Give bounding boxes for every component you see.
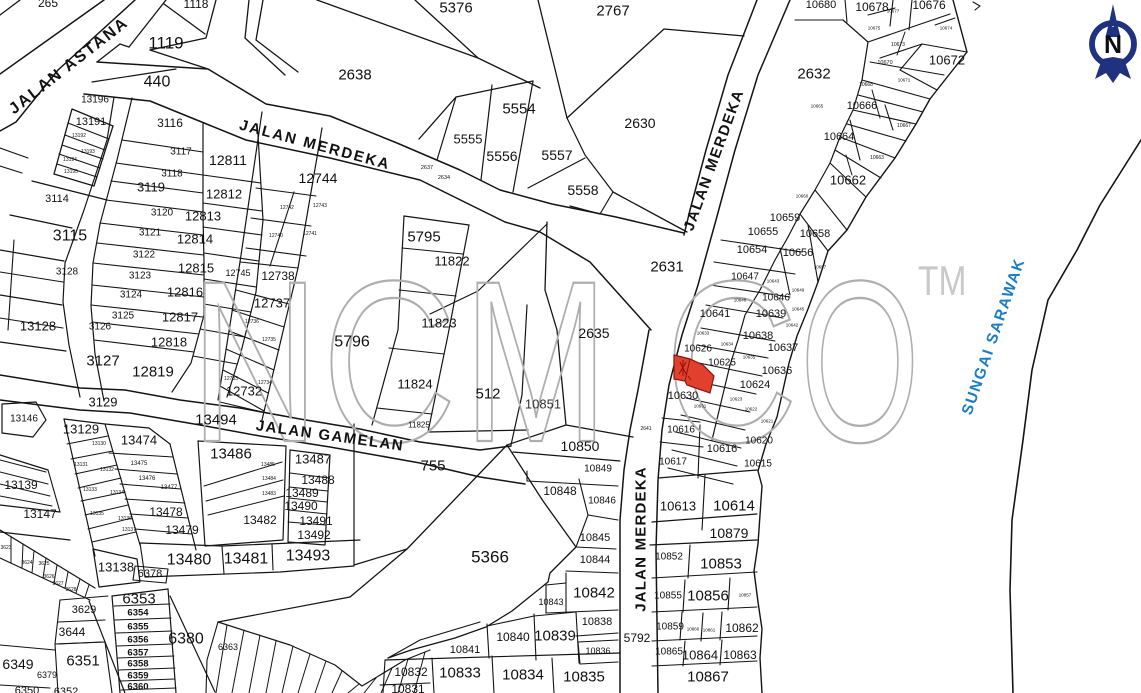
svg-text:5554: 5554: [502, 101, 535, 118]
svg-text:5556: 5556: [486, 148, 517, 164]
svg-text:10645: 10645: [792, 307, 805, 312]
svg-text:10670: 10670: [877, 60, 892, 66]
svg-text:10834: 10834: [502, 667, 544, 684]
svg-text:3124: 3124: [120, 290, 143, 301]
svg-text:3128: 3128: [56, 267, 79, 278]
svg-text:6353: 6353: [122, 591, 155, 608]
svg-text:13489: 13489: [285, 486, 319, 500]
svg-text:10865: 10865: [655, 647, 683, 658]
svg-text:12812: 12812: [206, 187, 242, 202]
svg-text:10649: 10649: [792, 288, 805, 293]
svg-text:13490: 13490: [284, 499, 318, 513]
svg-text:6357: 6357: [127, 648, 148, 659]
svg-text:3116: 3116: [157, 116, 183, 130]
svg-text:6355: 6355: [127, 622, 149, 633]
svg-text:3126: 3126: [89, 322, 112, 333]
svg-text:3125: 3125: [112, 311, 135, 322]
svg-text:13481: 13481: [224, 551, 269, 568]
svg-text:13477: 13477: [161, 485, 178, 491]
svg-text:12735: 12735: [262, 337, 276, 343]
svg-text:5376: 5376: [439, 0, 472, 17]
svg-text:10860: 10860: [687, 627, 700, 632]
svg-text:12736: 12736: [245, 319, 259, 325]
svg-text:2630: 2630: [624, 115, 655, 131]
svg-text:10662: 10662: [830, 173, 866, 188]
svg-text:10636: 10636: [762, 365, 793, 377]
svg-text:10639: 10639: [756, 308, 787, 320]
svg-text:13136: 13136: [118, 516, 132, 522]
svg-text:10616: 10616: [707, 443, 738, 455]
svg-text:13485: 13485: [261, 462, 275, 468]
svg-text:6378: 6378: [138, 568, 162, 580]
svg-text:12814: 12814: [177, 232, 213, 247]
svg-text:10637: 10637: [768, 342, 799, 354]
svg-text:13488: 13488: [301, 473, 335, 487]
svg-text:6354: 6354: [127, 608, 149, 619]
svg-text:10625: 10625: [708, 358, 736, 369]
svg-text:5366: 5366: [471, 548, 509, 567]
svg-text:13129: 13129: [63, 422, 99, 437]
svg-text:13487: 13487: [295, 452, 331, 467]
svg-text:2638: 2638: [338, 67, 371, 84]
svg-text:13494: 13494: [195, 412, 237, 429]
svg-text:13192: 13192: [72, 133, 86, 139]
svg-text:10838: 10838: [582, 616, 613, 628]
svg-text:3624: 3624: [21, 560, 32, 566]
svg-text:3119: 3119: [137, 180, 165, 195]
svg-text:13492: 13492: [297, 528, 331, 542]
svg-text:13476: 13476: [139, 476, 156, 482]
svg-text:10836: 10836: [585, 646, 610, 656]
svg-text:13479: 13479: [165, 523, 199, 537]
svg-text:5555: 5555: [454, 132, 483, 147]
svg-text:13193: 13193: [81, 149, 95, 155]
svg-text:3118: 3118: [161, 169, 183, 180]
svg-text:6350: 6350: [15, 685, 39, 693]
svg-text:2637: 2637: [421, 165, 433, 171]
svg-text:10833: 10833: [439, 665, 481, 682]
svg-text:13138: 13138: [98, 560, 134, 575]
svg-text:10672: 10672: [929, 53, 965, 68]
svg-text:6358: 6358: [127, 659, 148, 670]
svg-text:10677: 10677: [887, 9, 900, 14]
svg-text:10675: 10675: [868, 26, 881, 31]
svg-text:13135: 13135: [90, 511, 104, 517]
svg-text:10666: 10666: [847, 100, 878, 112]
svg-text:13482: 13482: [243, 513, 277, 527]
svg-text:10835: 10835: [563, 669, 605, 686]
svg-text:10626: 10626: [684, 344, 712, 355]
svg-text:2634: 2634: [438, 175, 450, 181]
svg-text:10620: 10620: [745, 436, 773, 447]
svg-text:13131: 13131: [74, 462, 88, 468]
svg-text:10845: 10845: [580, 532, 611, 544]
svg-text:10624: 10624: [740, 379, 771, 391]
svg-text:10849: 10849: [584, 464, 612, 475]
svg-text:10643: 10643: [767, 279, 780, 284]
svg-text:12742: 12742: [280, 205, 294, 211]
svg-text:13478: 13478: [149, 505, 183, 519]
svg-text:10678: 10678: [855, 0, 889, 14]
svg-text:12732: 12732: [226, 384, 262, 399]
svg-text:10654: 10654: [737, 244, 768, 256]
svg-text:10879: 10879: [710, 525, 749, 541]
svg-text:13474: 13474: [121, 433, 157, 448]
svg-text:10853: 10853: [700, 556, 742, 573]
svg-text:11823: 11823: [421, 316, 456, 331]
svg-text:10641: 10641: [700, 308, 731, 320]
svg-text:10864: 10864: [682, 648, 718, 663]
svg-text:3644: 3644: [59, 625, 86, 639]
svg-text:3122: 3122: [133, 250, 156, 261]
svg-text:13483: 13483: [262, 491, 276, 497]
svg-text:10614: 10614: [713, 498, 755, 515]
svg-text:10673: 10673: [891, 42, 905, 48]
svg-text:3120: 3120: [151, 208, 174, 219]
svg-text:13475: 13475: [131, 461, 148, 467]
svg-text:10842: 10842: [573, 585, 615, 602]
svg-text:5792: 5792: [624, 631, 651, 645]
svg-text:2641: 2641: [640, 426, 651, 432]
svg-text:13137: 13137: [122, 527, 136, 533]
svg-text:3117: 3117: [170, 147, 192, 158]
svg-text:3123: 3123: [129, 271, 152, 282]
svg-text:10633: 10633: [697, 331, 710, 336]
svg-text:10631: 10631: [694, 404, 707, 409]
svg-text:3129: 3129: [89, 395, 118, 410]
svg-text:10658: 10658: [800, 228, 831, 240]
svg-text:1118: 1118: [184, 0, 209, 11]
svg-text:13146: 13146: [10, 414, 38, 425]
svg-text:6356: 6356: [127, 635, 148, 646]
svg-text:755: 755: [420, 458, 445, 475]
svg-text:10856: 10856: [687, 588, 729, 605]
svg-text:13132: 13132: [100, 467, 114, 473]
svg-text:11822: 11822: [434, 254, 469, 269]
svg-text:5557: 5557: [541, 147, 572, 163]
svg-text:3127: 3127: [86, 353, 119, 370]
svg-text:265: 265: [38, 0, 58, 10]
svg-text:10646: 10646: [762, 293, 790, 304]
svg-text:O: O: [800, 234, 920, 490]
svg-text:10657: 10657: [814, 265, 827, 270]
svg-text:10635: 10635: [743, 355, 756, 360]
svg-text:10846: 10846: [588, 496, 616, 507]
svg-text:13195: 13195: [64, 169, 78, 175]
svg-text:10839: 10839: [534, 628, 576, 645]
svg-text:12819: 12819: [132, 364, 174, 381]
svg-text:6363: 6363: [218, 642, 238, 652]
svg-text:10656: 10656: [783, 247, 814, 259]
svg-text:3114: 3114: [45, 193, 69, 205]
svg-text:3629: 3629: [72, 604, 96, 616]
svg-text:2631: 2631: [650, 259, 683, 276]
svg-text:3625: 3625: [38, 561, 49, 567]
svg-text:10621: 10621: [761, 419, 774, 424]
svg-text:13486: 13486: [210, 446, 252, 463]
svg-text:10634: 10634: [721, 342, 734, 347]
svg-text:6359: 6359: [127, 671, 148, 682]
svg-text:10841: 10841: [450, 644, 481, 656]
svg-text:10642: 10642: [786, 323, 799, 328]
svg-text:12743: 12743: [313, 203, 327, 209]
svg-text:2635: 2635: [578, 325, 609, 341]
svg-text:10648: 10648: [734, 298, 747, 303]
svg-text:1119: 1119: [148, 34, 183, 53]
svg-text:10676: 10676: [912, 0, 946, 12]
svg-text:10613: 10613: [660, 499, 696, 514]
svg-text:13194: 13194: [63, 157, 77, 163]
svg-text:10852: 10852: [655, 552, 683, 563]
svg-text:12733: 12733: [224, 376, 238, 382]
svg-text:10668: 10668: [859, 82, 873, 88]
svg-text:10674: 10674: [940, 26, 953, 31]
svg-text:N: N: [1104, 31, 1122, 59]
svg-text:10667: 10667: [897, 123, 911, 129]
svg-text:10680: 10680: [806, 0, 837, 11]
svg-text:6379: 6379: [37, 670, 57, 680]
svg-text:3623: 3623: [0, 545, 11, 551]
svg-text:10659: 10659: [770, 212, 801, 224]
svg-text:13191: 13191: [76, 116, 107, 128]
svg-text:440: 440: [144, 74, 171, 91]
svg-text:10623: 10623: [730, 397, 743, 402]
svg-text:10616: 10616: [667, 425, 695, 436]
svg-text:13130: 13130: [92, 441, 106, 447]
svg-text:10660: 10660: [796, 194, 809, 199]
svg-text:10862: 10862: [725, 621, 759, 635]
svg-text:5558: 5558: [567, 182, 598, 198]
svg-text:13139: 13139: [4, 478, 38, 492]
svg-text:10647: 10647: [731, 272, 759, 283]
svg-text:10655: 10655: [748, 226, 779, 238]
svg-text:6352: 6352: [54, 686, 78, 693]
svg-text:13147: 13147: [23, 507, 57, 521]
svg-text:10848: 10848: [543, 484, 577, 498]
svg-text:13128: 13128: [20, 319, 56, 334]
svg-text:10863: 10863: [723, 648, 757, 662]
svg-text:10855: 10855: [654, 591, 682, 602]
svg-text:11824: 11824: [397, 377, 432, 392]
svg-text:6360: 6360: [127, 682, 148, 693]
svg-text:10671: 10671: [898, 78, 911, 83]
svg-text:TM: TM: [918, 259, 966, 305]
svg-text:10615: 10615: [744, 459, 772, 470]
svg-text:6351: 6351: [66, 653, 99, 670]
svg-text:13134: 13134: [110, 490, 124, 496]
svg-text:512: 512: [475, 386, 500, 403]
svg-text:10859: 10859: [656, 622, 684, 633]
svg-text:2632: 2632: [797, 66, 830, 83]
svg-text:3115: 3115: [53, 228, 88, 245]
svg-text:13480: 13480: [167, 552, 212, 569]
svg-text:13491: 13491: [299, 514, 333, 528]
svg-text:13196: 13196: [81, 95, 109, 106]
svg-text:10663: 10663: [870, 155, 884, 161]
svg-text:3627: 3627: [52, 581, 63, 587]
svg-text:10664: 10664: [824, 131, 855, 143]
svg-text:10861: 10861: [703, 628, 716, 633]
svg-text:10832: 10832: [394, 665, 428, 679]
svg-text:13133: 13133: [83, 487, 97, 493]
svg-text:12811: 12811: [209, 152, 247, 168]
svg-text:10622: 10622: [745, 407, 758, 412]
svg-text:11825: 11825: [408, 421, 430, 430]
svg-text:2767: 2767: [596, 3, 629, 20]
svg-text:12817: 12817: [162, 310, 198, 325]
svg-text:6349: 6349: [2, 656, 33, 672]
svg-text:12818: 12818: [151, 335, 187, 350]
svg-text:6380: 6380: [168, 631, 204, 648]
svg-text:10665: 10665: [811, 104, 824, 109]
svg-text:JALAN MERDEKA: JALAN MERDEKA: [633, 466, 650, 612]
svg-text:10638: 10638: [743, 330, 774, 342]
svg-text:5796: 5796: [334, 334, 370, 351]
svg-text:10843: 10843: [538, 597, 563, 607]
svg-text:12738: 12738: [261, 269, 295, 283]
svg-text:3628: 3628: [65, 587, 76, 593]
svg-text:10831: 10831: [391, 682, 425, 693]
svg-text:5795: 5795: [407, 229, 440, 246]
svg-text:10857: 10857: [739, 593, 752, 598]
svg-text:13493: 13493: [286, 548, 331, 565]
svg-text:12815: 12815: [178, 261, 214, 276]
svg-text:10840: 10840: [496, 630, 530, 644]
svg-text:12745: 12745: [225, 268, 250, 278]
svg-text:10630: 10630: [668, 390, 699, 402]
svg-text:12740: 12740: [269, 233, 283, 239]
svg-text:13484: 13484: [262, 476, 276, 482]
svg-text:3121: 3121: [139, 228, 162, 239]
svg-text:10844: 10844: [580, 554, 611, 566]
svg-text:10867: 10867: [687, 669, 729, 686]
svg-text:12744: 12744: [299, 170, 338, 186]
svg-text:12813: 12813: [185, 209, 221, 224]
svg-text:10617: 10617: [659, 457, 687, 468]
svg-text:12737: 12737: [254, 296, 290, 311]
svg-text:3626: 3626: [43, 574, 54, 580]
svg-text:12816: 12816: [167, 285, 203, 300]
svg-text:12741: 12741: [303, 231, 317, 237]
svg-text:10851: 10851: [525, 397, 561, 412]
svg-text:10850: 10850: [561, 438, 600, 454]
